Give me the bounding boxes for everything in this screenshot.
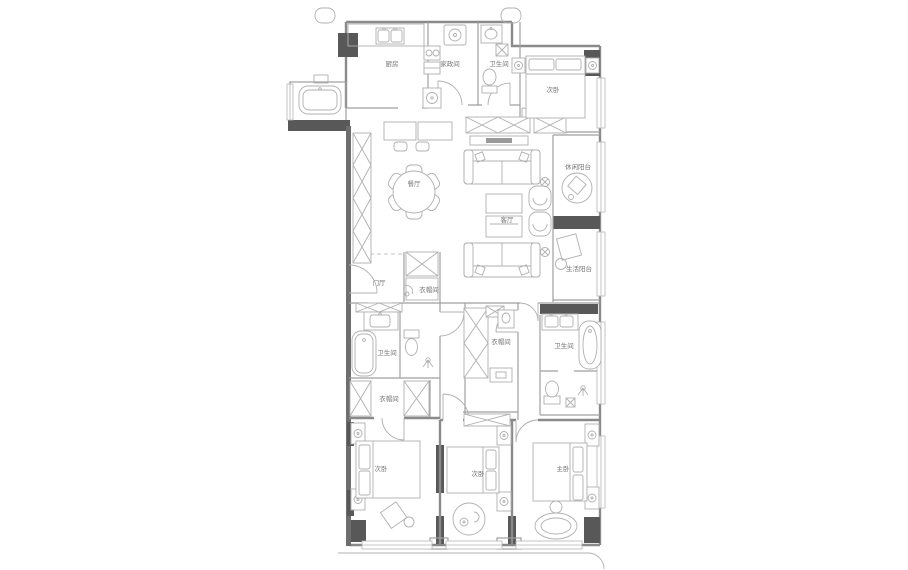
bath-master-label: 卫生间 xyxy=(554,341,574,350)
bathtub-icon xyxy=(579,321,601,369)
toilet-icon xyxy=(544,381,560,404)
floor-plan-canvas: 厨房 家政间 卫生间 次卧 餐厅 客厅 休闲阳台 生活阳台 门厅 衣帽间 卫生间… xyxy=(0,0,908,570)
vanity-icon xyxy=(364,312,398,330)
sofa-icon xyxy=(464,243,540,277)
vanity-icon xyxy=(481,25,502,43)
laundry-label: 家政间 xyxy=(440,59,460,68)
dining-label: 餐厅 xyxy=(408,179,422,188)
closet-master-furniture xyxy=(490,310,514,382)
floor-plan-drawing: 厨房 家政间 卫生间 次卧 餐厅 客厅 休闲阳台 生活阳台 门厅 衣帽间 卫生间… xyxy=(0,0,908,570)
nightstand-icon xyxy=(497,426,511,445)
living-label: 客厅 xyxy=(501,215,515,224)
bedroom-master-label: 主卧 xyxy=(557,464,571,473)
kitchen-label: 厨房 xyxy=(386,59,399,68)
dining-table-icon xyxy=(387,165,442,219)
bathtub-icon xyxy=(352,331,376,376)
bathtub-icon xyxy=(299,86,341,114)
balcony-table-icon xyxy=(562,173,592,203)
bath-top-furniture xyxy=(481,25,508,93)
laundry-furniture xyxy=(444,25,466,45)
bedroom-mid-label: 次卧 xyxy=(472,469,486,478)
bed-icon xyxy=(447,447,499,493)
kitchen-island-icon xyxy=(384,122,452,151)
balcony-bottom-furniture xyxy=(556,234,582,270)
laundry-basin-icon xyxy=(498,310,514,328)
bedroom-left-furniture xyxy=(351,423,420,528)
balcony-top-label: 休闲阳台 xyxy=(565,162,591,171)
bed-icon xyxy=(356,441,420,498)
bedroom-left-label: 次卧 xyxy=(375,464,389,473)
nightstand-icon xyxy=(497,492,511,511)
tall-cabinet-icon xyxy=(353,133,371,263)
coffee-table-icon xyxy=(486,194,522,237)
closet-master-label: 衣帽间 xyxy=(491,337,511,346)
toilet-icon xyxy=(482,69,497,93)
washer-icon xyxy=(444,25,466,45)
bath-master-furniture xyxy=(542,314,601,407)
living-furniture xyxy=(464,136,551,277)
bath-top-label: 卫生间 xyxy=(489,59,509,68)
shower-head-icon xyxy=(423,358,433,368)
balcony-bottom-label: 生活阳台 xyxy=(566,264,592,273)
closet-left-label: 衣帽间 xyxy=(379,394,399,403)
chair-icon xyxy=(380,502,414,528)
foyer-label: 门厅 xyxy=(373,278,387,287)
foyer-furniture xyxy=(404,285,413,296)
lounge-chair-icon xyxy=(556,234,582,270)
bath-family-furniture xyxy=(352,312,433,376)
chaise-icon xyxy=(535,501,577,539)
shower-drain-icon xyxy=(496,44,508,56)
bedroom-mid-wardrobe-icon xyxy=(464,414,510,426)
low-cabinet-icon xyxy=(356,303,402,312)
floor-lamp-icon xyxy=(541,248,550,257)
kitchen-sink-icon xyxy=(376,28,404,44)
bedroom-top-label: 次卧 xyxy=(547,85,561,94)
dresser-icon xyxy=(490,368,512,382)
tv-wall-cabinet-icon xyxy=(466,117,566,133)
nightstand-icon xyxy=(512,58,525,73)
round-table-icon xyxy=(453,503,485,535)
armchair-icon xyxy=(529,212,551,236)
tv-console-icon xyxy=(470,136,528,145)
dining-furniture xyxy=(384,122,452,219)
sofa-icon xyxy=(464,150,540,184)
floor-lamp-icon xyxy=(541,178,550,187)
shower-icon xyxy=(566,386,588,407)
nightstand-icon xyxy=(586,58,599,73)
armchair-icon xyxy=(529,186,551,210)
bedroom-mid-furniture xyxy=(447,426,511,535)
bath-family-label: 卫生间 xyxy=(377,348,397,357)
kitchen-appliances-icon xyxy=(423,46,441,108)
foyer-closet-label: 衣帽间 xyxy=(419,285,439,294)
balcony-top-furniture xyxy=(562,173,592,203)
bay-tub xyxy=(299,86,341,114)
double-vanity-icon xyxy=(542,314,578,330)
toilet-icon xyxy=(404,330,419,356)
